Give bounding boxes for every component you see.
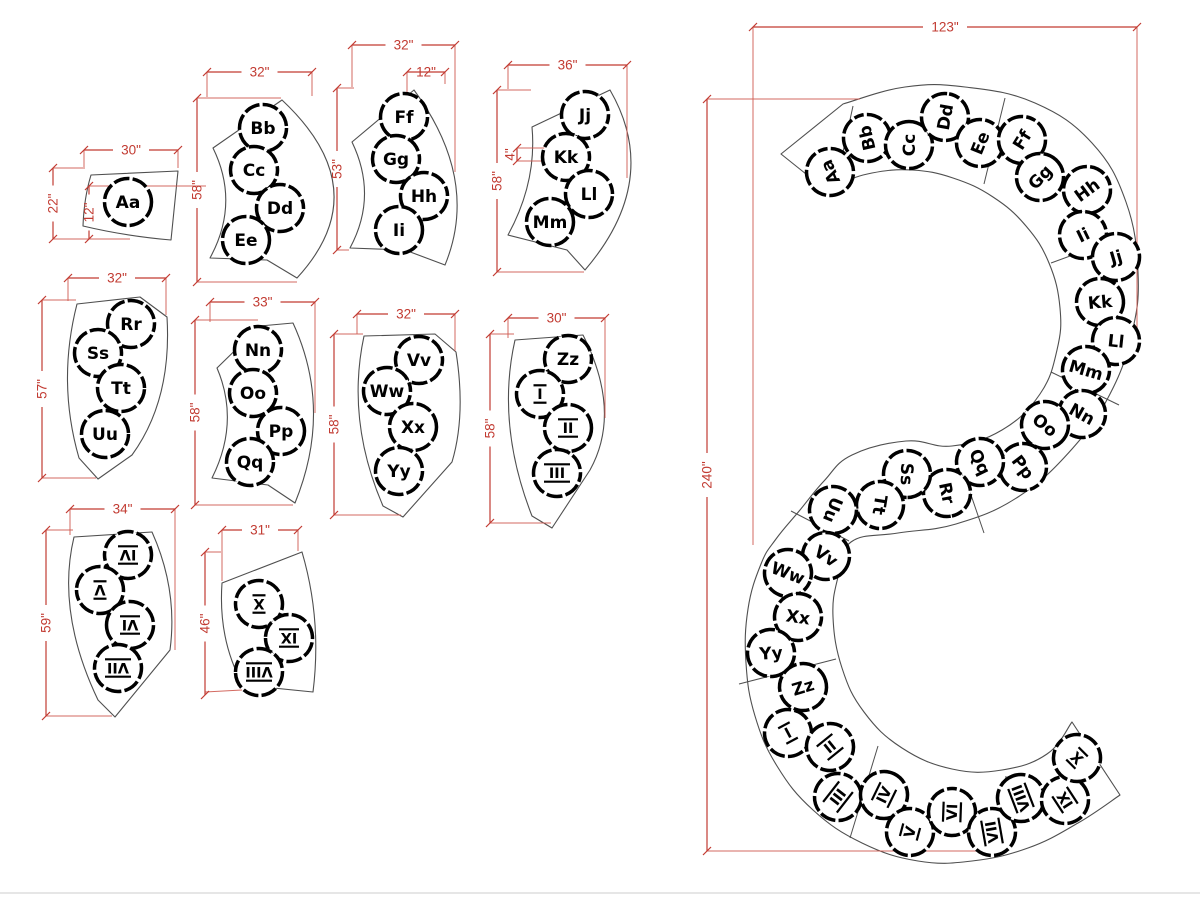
dim-label: 58" (190, 180, 205, 200)
seat-bb: Bb (240, 105, 287, 152)
dim-label: 32" (250, 65, 270, 80)
seat-iii: III (534, 450, 581, 497)
dim-label: 58" (327, 414, 342, 434)
seat-qq: Qq (227, 439, 274, 486)
seat-label: Qq (237, 453, 264, 473)
seat-label: II (563, 421, 574, 437)
seat-label: VI (945, 803, 962, 820)
seat-label: Ss (896, 463, 916, 486)
seat-label: Pp (269, 422, 294, 442)
dim-label: 58" (188, 402, 203, 422)
seat-label: Ee (234, 231, 257, 251)
dim-label: 240" (700, 461, 715, 489)
dim-label: 46" (198, 613, 213, 633)
seat-ii: Ii (376, 207, 423, 254)
seat-label: Xx (785, 606, 812, 629)
seat-vii: VII (95, 645, 142, 692)
seat-viii: VIII (236, 649, 283, 696)
seat-label: Kk (554, 148, 579, 168)
dim-label: 4" (503, 148, 518, 161)
seat-label: VII (107, 659, 129, 675)
seat-label: III (549, 466, 565, 482)
seat-label: Hh (411, 187, 437, 207)
seat-gg: Gg (373, 136, 420, 183)
numeral-underline (960, 802, 961, 822)
dim-label: 34" (113, 502, 133, 517)
seat-label: IX (281, 629, 298, 645)
seat-label: Ss (87, 344, 109, 364)
dim-label: 12" (82, 202, 97, 222)
dim-label: 30" (547, 311, 567, 326)
dim-label: 36" (558, 58, 578, 73)
seat-label: Tt (868, 494, 891, 517)
dim-label: 59" (39, 613, 54, 633)
seat-label: V (94, 581, 106, 597)
dim-label: 30" (121, 143, 141, 158)
seat-label: Vv (407, 351, 431, 371)
seat-uu: Uu (82, 411, 129, 458)
seat-label: Yy (758, 643, 784, 665)
dim-label: 32" (396, 307, 416, 322)
seat-label: Ii (393, 221, 405, 241)
dim-label: 58" (490, 171, 505, 191)
seat-mm: Mm (527, 199, 574, 246)
dim-label: 32" (394, 38, 414, 53)
numeral-overline (943, 802, 944, 822)
seat-label: Jj (578, 106, 591, 126)
seat-label: Kk (1087, 292, 1114, 314)
seat-label: Aa (116, 193, 141, 213)
seat-ll: Ll (566, 171, 613, 218)
seat-aa: Aa (105, 179, 152, 226)
seat-label: Cc (900, 134, 920, 157)
seat-ii: II (545, 405, 592, 452)
seat-label: Oo (240, 384, 266, 404)
seat-ff: Ff (381, 94, 428, 141)
floor-plan-svg: 30"22"12"Aa32"58"BbCcDdEe32"12"53"FfGgHh… (0, 0, 1200, 901)
seat-label: IV (119, 546, 136, 562)
seat-label: Bb (250, 119, 275, 139)
dim-label: 57" (35, 379, 50, 399)
seat-label: Ll (581, 185, 598, 205)
dim-label: 12" (416, 65, 436, 80)
seat-label: Yy (386, 462, 410, 482)
seat-nn: Nn (235, 327, 282, 374)
seat-label: Ww (370, 382, 405, 402)
dim-label: 32" (107, 271, 127, 286)
dim-label: 123" (931, 20, 959, 35)
seat-vi: VI (107, 602, 154, 649)
seat-label: Mm (533, 213, 568, 233)
dim-label: 58" (483, 418, 498, 438)
dim-label: 53" (330, 159, 345, 179)
seat-label: X (253, 595, 264, 611)
seat-label: I (537, 387, 542, 403)
seat-label: Tt (111, 379, 131, 399)
seat-label: VI (122, 616, 139, 632)
seat-yy: Yy (376, 448, 423, 495)
seat-tt: Tt (98, 365, 145, 412)
seat-label: Dd (267, 199, 293, 219)
seat-label: Gg (383, 150, 409, 170)
dim-label: 31" (250, 523, 270, 538)
seat-xx: Xx (390, 404, 437, 451)
seat-label: Ll (1107, 331, 1126, 353)
seat-label: Zz (557, 350, 579, 370)
seat-label: Ff (394, 108, 414, 128)
seat-label: Cc (243, 161, 266, 181)
seat-label: Rr (120, 315, 142, 335)
seat-ee: Ee (223, 217, 270, 264)
seat-label: Nn (245, 341, 271, 361)
seat-label: Xx (401, 418, 425, 438)
dim-label: 33" (253, 295, 273, 310)
seat-label: Uu (92, 425, 118, 445)
seat-jj: Jj (562, 92, 609, 139)
seat-label: VIII (245, 663, 272, 679)
dim-label: 22" (46, 193, 61, 213)
drawing-canvas: 30"22"12"Aa32"58"BbCcDdEe32"12"53"FfGgHh… (0, 0, 1200, 901)
